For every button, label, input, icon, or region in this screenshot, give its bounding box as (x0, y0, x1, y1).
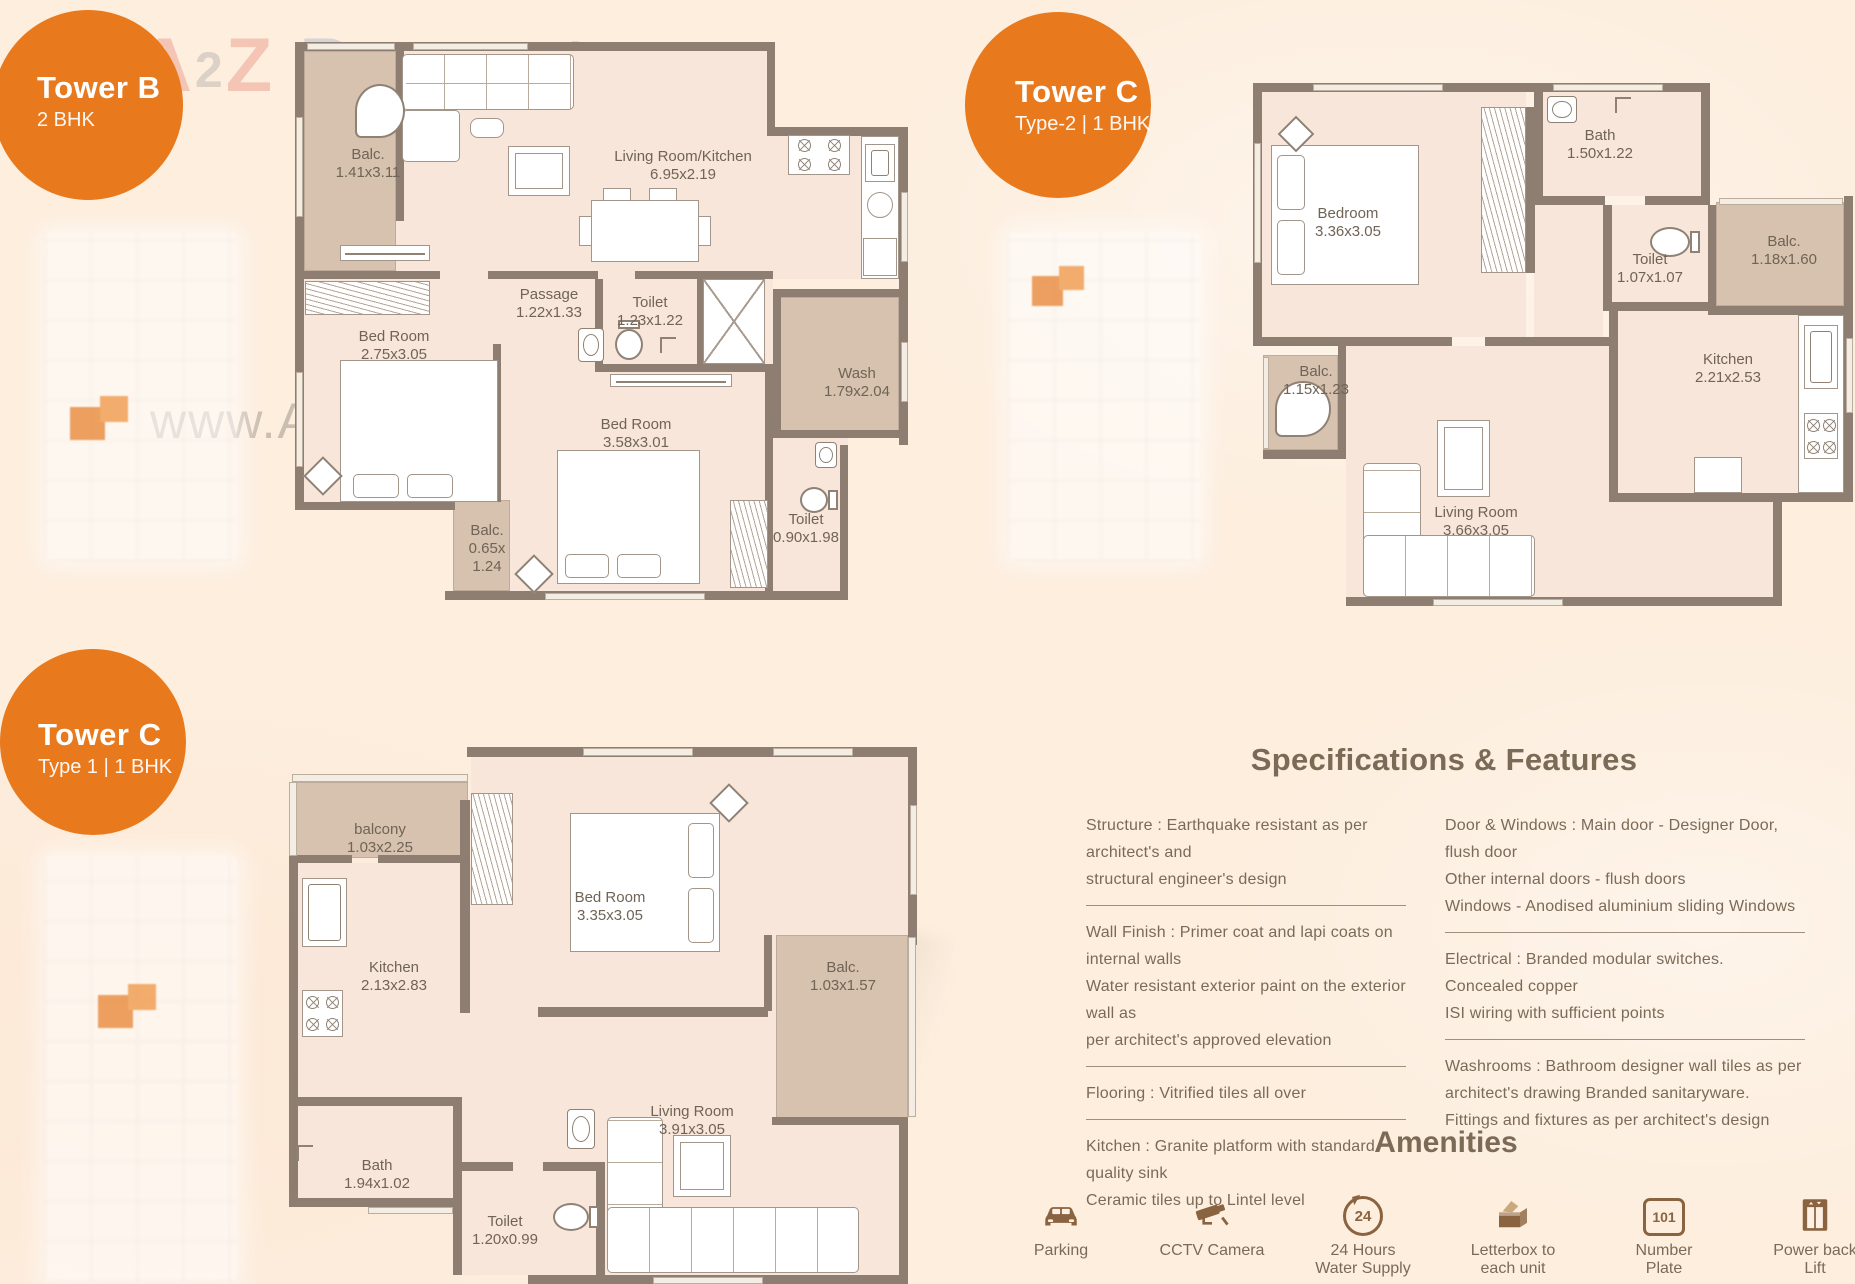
room-label-wash: Wash1.79x2.04 (824, 365, 890, 401)
spec-item-structure: Structure : Earthquake resistant as per … (1086, 812, 1406, 893)
room-label-bath: Bath1.50x1.22 (1567, 127, 1633, 163)
wall (295, 502, 455, 510)
divider (1445, 932, 1805, 933)
wall (772, 1117, 908, 1125)
wardrobe (305, 281, 430, 315)
window (368, 1207, 453, 1214)
mini-orange-plan (1032, 266, 1084, 310)
wardrobe (730, 500, 768, 588)
window (289, 782, 297, 856)
wall (292, 855, 352, 863)
wall (635, 271, 773, 279)
wardrobe (471, 793, 513, 905)
badge-tower-c-type2: Tower C Type-2 | 1 BHK (965, 12, 1151, 198)
window (1263, 357, 1269, 449)
wall (773, 297, 781, 437)
room-label-kitchen: Kitchen2.13x2.83 (361, 959, 427, 995)
washbasin-icon (567, 1109, 595, 1149)
bed-pillows (353, 474, 453, 498)
wall (764, 935, 772, 1011)
wall (595, 364, 773, 372)
floorplan-tower-c-type1: balcony1.03x2.25 Kitchen2.13x2.83 Bed Ro… (253, 745, 917, 1284)
wall (773, 430, 908, 438)
kitchen-sink (1804, 325, 1838, 389)
faucet-icon (1615, 97, 1631, 113)
wall (840, 445, 848, 591)
room-label-balcony-right: Balc.1.03x1.57 (810, 959, 876, 995)
badge-subtitle: Type-2 | 1 BHK (1015, 113, 1150, 136)
kitchen-sink (865, 144, 895, 182)
window (1254, 143, 1261, 263)
room-label-toilet1: Toilet1.23x1.22 (617, 294, 683, 330)
faded-plan-thumbnail (45, 856, 237, 1282)
bed-pillows (1277, 155, 1305, 275)
divider (1086, 1066, 1406, 1067)
room-hall (1534, 205, 1603, 337)
wall (1485, 337, 1618, 346)
room-label-bedroom: Bed Room3.35x3.05 (575, 889, 646, 925)
room-label-toilet: Toilet1.07x1.07 (1617, 251, 1683, 287)
window (901, 192, 908, 262)
room-label-kitchen: Kitchen2.21x2.53 (1695, 351, 1761, 387)
wall (453, 1162, 513, 1171)
letterbox-icon (1438, 1188, 1588, 1236)
room-label-balcony2: Balc.1.15x1.23 (1283, 363, 1349, 399)
tv-unit (508, 146, 570, 196)
spec-item-washrooms: Washrooms : Bathroom designer wall tiles… (1445, 1053, 1805, 1134)
wall (295, 271, 440, 279)
stove-icon (788, 135, 850, 175)
sofa (402, 54, 574, 110)
specs-right-column: Door & Windows : Main door - Designer Do… (1445, 812, 1805, 1134)
dining-chair (697, 216, 711, 246)
stove-icon (302, 990, 343, 1037)
room-label-balcony: balcony1.03x2.25 (347, 821, 413, 857)
amenity-cctv: CCTV Camera (1137, 1188, 1287, 1260)
fridge (863, 238, 897, 276)
bed-pillows (565, 554, 661, 578)
room-label-balcony: Balc.1.41x3.11 (336, 146, 401, 182)
window (1433, 599, 1563, 606)
wall (1603, 302, 1716, 311)
badge-title: Tower C (38, 717, 172, 753)
amenity-water-supply: 24 24 Hours Water Supply (1288, 1188, 1438, 1278)
window (292, 774, 468, 782)
room-label-bath: Bath1.94x1.02 (344, 1157, 410, 1193)
24-hours-icon: 24 (1288, 1188, 1438, 1236)
badge-subtitle: Type 1 | 1 BHK (38, 756, 172, 779)
faucet-icon (660, 337, 676, 353)
divider (1086, 1119, 1406, 1120)
room-label-balcony2: Balc.0.65x1.24 (469, 522, 506, 576)
wall (1263, 450, 1346, 459)
window (307, 43, 395, 50)
wall (453, 1162, 462, 1275)
shaft (703, 279, 765, 364)
divider (1445, 1039, 1805, 1040)
badge-tower-b: Tower B 2 BHK (0, 10, 183, 200)
toilet-icon (800, 487, 838, 513)
room-label-balcony1: Balc.1.18x1.60 (1751, 233, 1817, 269)
washbasin-icon (1547, 96, 1577, 123)
window (1719, 198, 1843, 205)
room-label-bedroom2: Bed Room3.58x3.01 (601, 416, 672, 452)
fridge (1694, 457, 1742, 493)
floorplan-tower-c-type2: Bedroom3.36x3.05 Bath1.50x1.22 Toilet1.0… (1253, 83, 1855, 608)
amenities-title: Amenities (1166, 1126, 1726, 1160)
wall (1701, 83, 1710, 205)
kitchen-sink (302, 878, 347, 947)
wall (1543, 196, 1605, 205)
bed-pillows (688, 823, 714, 943)
cctv-icon (1137, 1188, 1287, 1236)
washbasin-icon (578, 328, 604, 362)
logo-letter: 2 (195, 42, 226, 98)
room-label-bedroom: Bedroom3.36x3.05 (1315, 205, 1381, 241)
window (296, 117, 303, 217)
window (413, 43, 528, 50)
wall (1253, 337, 1452, 346)
specifications-title: Specifications & Features (1164, 742, 1724, 778)
wall (773, 289, 908, 297)
brochure-page: A2Z Property www.A2ZProperty.in Tower B … (0, 0, 1855, 1284)
room-label-toilet: Toilet1.20x0.99 (472, 1213, 538, 1249)
sofa (1363, 535, 1535, 597)
room-label-toilet2: Toilet0.90x1.98 (773, 511, 839, 547)
stove-icon (1804, 413, 1838, 459)
balcony-chair (355, 84, 405, 138)
wall (543, 1162, 600, 1171)
mini-orange-plan (70, 396, 128, 444)
faucet-icon (297, 1145, 313, 1161)
divider (1086, 905, 1406, 906)
wall (1534, 83, 1543, 205)
sofa-chaise (402, 110, 460, 162)
room-label-living: Living Room3.66x3.05 (1434, 504, 1517, 540)
room-label-bedroom1: Bed Room2.75x3.05 (359, 328, 430, 364)
window (296, 372, 303, 467)
window (773, 748, 853, 756)
window (901, 342, 908, 402)
room-label-passage: Passage1.22x1.33 (516, 286, 582, 322)
wall (1603, 205, 1612, 311)
floorplan-tower-b: Balc.1.41x3.11 Living Room/Kitchen6.95x2… (295, 42, 908, 600)
wall (289, 1198, 461, 1207)
room-label-living-kitchen: Living Room/Kitchen6.95x2.19 (614, 148, 752, 184)
ottoman (470, 118, 504, 138)
window (1313, 84, 1443, 91)
wardrobe (1481, 107, 1526, 273)
wall (289, 1097, 461, 1106)
amenity-letterbox: Letterbox to each unit (1438, 1188, 1588, 1278)
car-icon (986, 1188, 1136, 1236)
wall (1609, 311, 1618, 502)
lift-icon (1740, 1188, 1855, 1236)
rug (1437, 420, 1490, 497)
amenity-parking: Parking (986, 1188, 1136, 1260)
badge-title: Tower C (1015, 74, 1150, 110)
badge-tower-c-type1: Tower C Type 1 | 1 BHK (0, 649, 186, 835)
sofa (607, 1207, 859, 1273)
wall (767, 42, 775, 136)
wall (1716, 306, 1844, 315)
wall (1708, 205, 1716, 315)
window (910, 805, 917, 895)
sliding-window (610, 374, 732, 387)
window (545, 593, 705, 600)
wall (488, 271, 598, 279)
amenity-number-plate: 101 Number Plate (1589, 1188, 1739, 1278)
badge-title: Tower B (37, 70, 161, 106)
badge-subtitle: 2 BHK (37, 109, 161, 132)
spec-item-wall-finish: Wall Finish : Primer coat and lapi coats… (1086, 919, 1406, 1054)
window-sill (340, 245, 430, 261)
spec-item-flooring: Flooring : Vitrified tiles all over (1086, 1080, 1406, 1107)
wall (899, 1125, 908, 1275)
wall (1645, 196, 1701, 205)
appliance (867, 192, 893, 218)
spec-item-electrical: Electrical : Branded modular switches. C… (1445, 946, 1805, 1027)
spec-item-doors-windows: Door & Windows : Main door - Designer Do… (1445, 812, 1805, 920)
wall (1346, 597, 1781, 606)
rug (673, 1135, 731, 1197)
number-plate-icon: 101 (1589, 1188, 1739, 1236)
toilet-icon (553, 1203, 599, 1231)
window (1846, 338, 1853, 413)
washbasin-icon (815, 442, 837, 468)
mini-orange-plan (98, 984, 156, 1032)
amenity-lift: Power back Lift (1740, 1188, 1855, 1278)
wall (1609, 493, 1853, 502)
room-hall (453, 1007, 528, 1170)
room-label-living: Living Room3.91x3.05 (650, 1103, 733, 1139)
window (1553, 84, 1663, 91)
dining-table (591, 200, 699, 262)
window (653, 1277, 763, 1284)
logo-letter: Z (226, 23, 275, 108)
window (908, 937, 916, 1117)
wall (1773, 502, 1782, 606)
window (583, 748, 693, 756)
wall (538, 1007, 768, 1017)
wall (460, 800, 470, 1013)
